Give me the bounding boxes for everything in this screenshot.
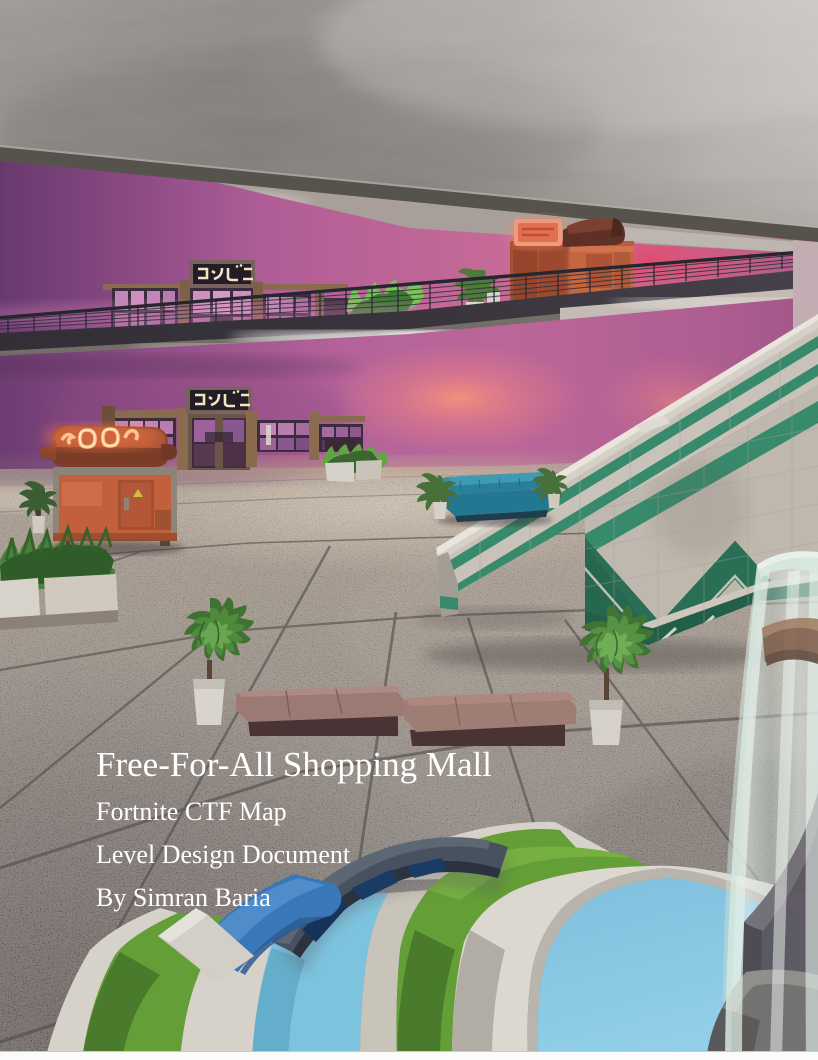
- svg-text:Level Design Document: Level Design Document: [96, 840, 351, 869]
- svg-text:Fortnite CTF Map: Fortnite CTF Map: [96, 797, 287, 826]
- svg-text:Free-For-All Shopping Mall: Free-For-All Shopping Mall: [96, 745, 492, 784]
- svg-text:By Simran Baria: By Simran Baria: [96, 883, 271, 912]
